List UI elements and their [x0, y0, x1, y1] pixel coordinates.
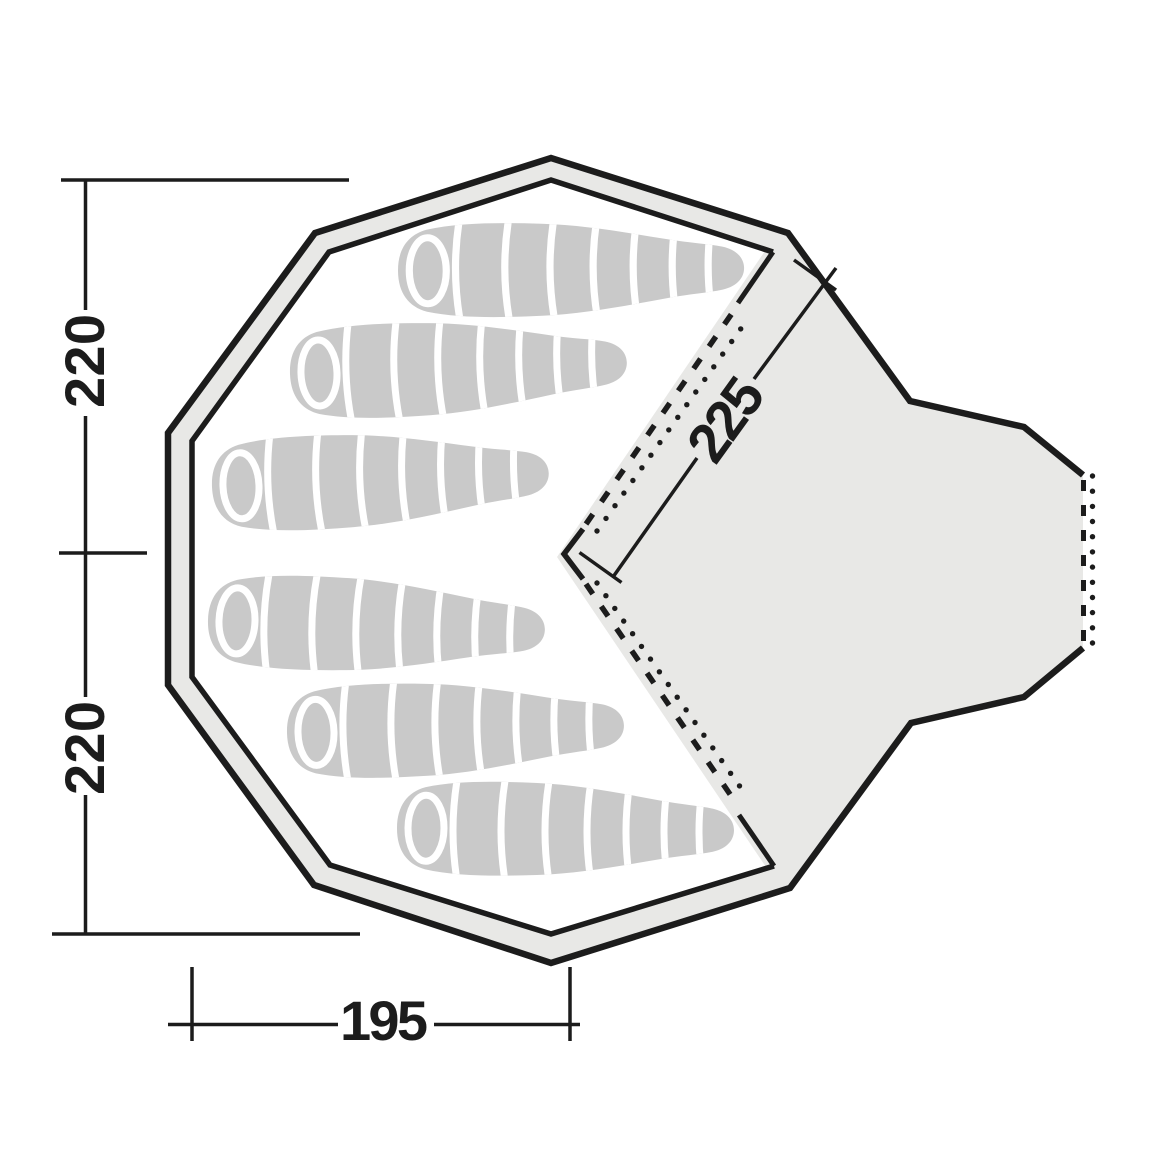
svg-text:195: 195	[340, 989, 428, 1052]
svg-text:220: 220	[53, 701, 116, 795]
svg-text:220: 220	[53, 314, 116, 408]
